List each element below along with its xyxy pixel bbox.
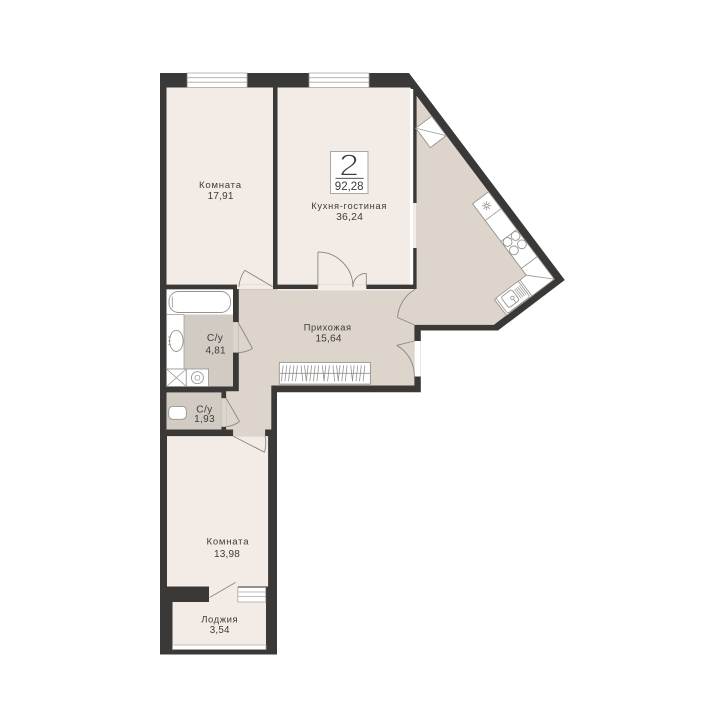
svg-text:17,91: 17,91	[208, 191, 234, 202]
svg-text:Кухня-гостиная: Кухня-гостиная	[311, 201, 387, 211]
svg-text:13,98: 13,98	[214, 549, 240, 560]
svg-text:Прихожая: Прихожая	[304, 322, 352, 332]
svg-text:С/у: С/у	[207, 333, 224, 344]
svg-text:1,93: 1,93	[194, 414, 215, 425]
svg-text:Комната: Комната	[206, 537, 249, 548]
svg-text:Комната: Комната	[199, 180, 242, 191]
svg-text:3,54: 3,54	[210, 625, 230, 636]
svg-text:2: 2	[339, 149, 359, 183]
svg-text:15,64: 15,64	[315, 334, 341, 345]
svg-text:36,24: 36,24	[336, 212, 363, 223]
svg-text:92,28: 92,28	[335, 181, 364, 193]
svg-text:Лоджия: Лоджия	[201, 615, 238, 626]
svg-text:4,81: 4,81	[205, 346, 226, 357]
